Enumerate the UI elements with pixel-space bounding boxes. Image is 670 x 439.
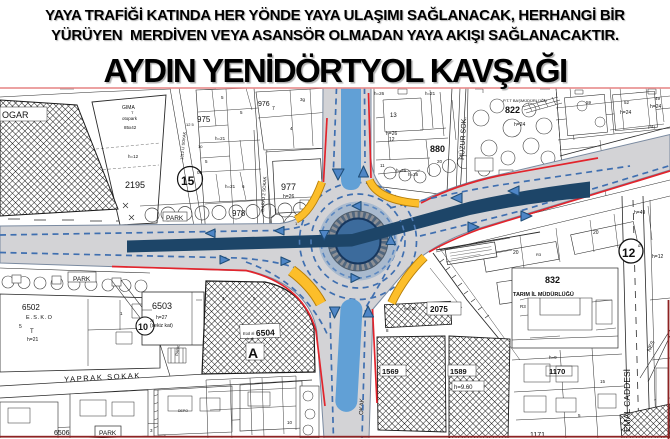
svg-text:977: 977	[281, 182, 296, 192]
svg-text:6504: 6504	[256, 327, 276, 338]
svg-text:h=24: h=24	[620, 110, 631, 116]
svg-text:1170: 1170	[549, 367, 565, 376]
svg-text:A: A	[248, 345, 258, 361]
svg-text:TARIM İL MÜDÜRLÜĞÜ: TARIM İL MÜDÜRLÜĞÜ	[513, 290, 574, 298]
svg-text:EMAL CADDESİ: EMAL CADDESİ	[622, 369, 632, 432]
svg-text:822: 822	[505, 105, 520, 115]
svg-text:h=27: h=27	[156, 315, 167, 321]
svg-text:h=21: h=21	[425, 91, 436, 96]
svg-text:h=26: h=26	[408, 172, 419, 177]
svg-text:10: 10	[138, 322, 148, 332]
svg-text:h=49: h=49	[634, 210, 645, 216]
svg-text:2075: 2075	[430, 305, 448, 314]
svg-text:15: 15	[600, 379, 606, 384]
svg-text:6503: 6503	[152, 301, 172, 311]
svg-text:DEPO: DEPO	[178, 409, 188, 413]
svg-text:T: T	[30, 329, 34, 335]
svg-text:7: 7	[272, 106, 275, 112]
svg-text:6502: 6502	[22, 303, 40, 312]
svg-text:880: 880	[430, 144, 445, 154]
svg-text:10: 10	[198, 144, 203, 149]
svg-text:h=24: h=24	[650, 104, 661, 110]
svg-text:PARK: PARK	[73, 276, 91, 283]
svg-text:1589: 1589	[450, 367, 467, 376]
svg-text:85x42: 85x42	[124, 125, 137, 130]
svg-text:832: 832	[545, 275, 560, 285]
svg-text:978: 978	[232, 209, 246, 218]
svg-text:h=21: h=21	[27, 337, 38, 343]
svg-text:otopark: otopark	[122, 116, 138, 121]
svg-text:2195: 2195	[125, 180, 145, 190]
svg-text:h=26: h=26	[283, 194, 294, 200]
svg-text:(sekiz kat): (sekiz kat)	[150, 323, 173, 329]
svg-text:00: 00	[197, 170, 203, 175]
svg-text:15: 15	[181, 174, 195, 188]
svg-text:3g: 3g	[300, 97, 306, 102]
svg-text:E.S.K.O: E.S.K.O	[26, 315, 53, 321]
svg-text:49: 49	[655, 96, 661, 101]
svg-text:975: 975	[197, 115, 211, 124]
svg-text:h=21: h=21	[215, 136, 226, 141]
svg-text:20: 20	[437, 159, 443, 164]
svg-text:R3: R3	[536, 252, 542, 257]
svg-text:13: 13	[390, 113, 397, 119]
svg-text:20: 20	[593, 230, 599, 236]
svg-text:12 5: 12 5	[186, 122, 195, 127]
svg-text:12: 12	[389, 137, 395, 143]
svg-text:h=12: h=12	[652, 254, 663, 260]
svg-text:PARK: PARK	[166, 215, 184, 222]
svg-text:h=9.60: h=9.60	[454, 385, 473, 391]
svg-text:5: 5	[19, 324, 22, 330]
svg-text:h=9.50: h=9.50	[404, 306, 417, 312]
svg-text:h=26: h=26	[396, 168, 407, 173]
svg-text:h=9: h=9	[549, 355, 557, 360]
svg-text:976: 976	[258, 101, 270, 108]
svg-text:OGAR: OGAR	[2, 110, 29, 120]
svg-text:1569: 1569	[382, 367, 399, 376]
svg-text:h=24: h=24	[514, 122, 525, 128]
svg-text:59: 59	[586, 100, 592, 105]
svg-text:h=26: h=26	[374, 91, 385, 96]
svg-text:11: 11	[380, 163, 385, 168]
svg-text:h=12: h=12	[128, 154, 139, 159]
svg-text:(51): (51)	[648, 124, 656, 129]
svg-text:h=9: h=9	[247, 336, 255, 341]
svg-text:R3: R3	[520, 304, 526, 309]
svg-text:52: 52	[624, 100, 630, 105]
svg-text:10: 10	[287, 420, 293, 425]
svg-text:20: 20	[513, 250, 519, 256]
svg-text:1171: 1171	[530, 432, 545, 439]
svg-text:12: 12	[622, 246, 636, 260]
svg-text:h=21: h=21	[225, 184, 236, 189]
svg-text:P.T.T BAŞMÜDÜRLÜĞÜ: P.T.T BAŞMÜDÜRLÜĞÜ	[503, 98, 547, 103]
